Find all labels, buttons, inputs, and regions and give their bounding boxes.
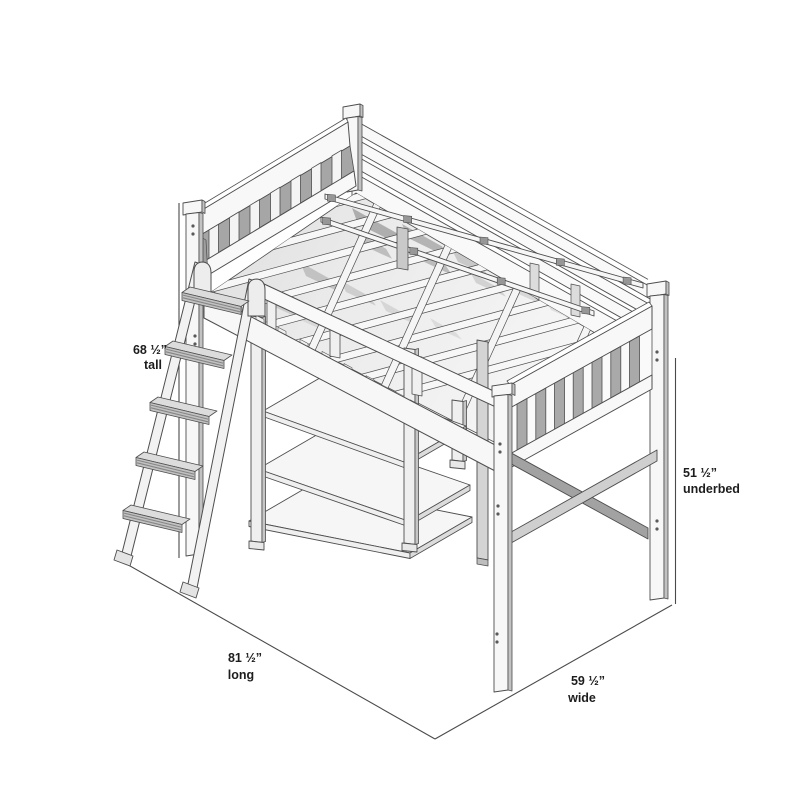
- svg-text:wide: wide: [567, 691, 596, 705]
- svg-text:underbed: underbed: [683, 482, 740, 496]
- svg-text:81 ½”: 81 ½”: [228, 651, 262, 665]
- svg-text:59 ½”: 59 ½”: [571, 674, 605, 688]
- svg-text:68 ½”: 68 ½”: [133, 343, 167, 357]
- svg-text:long: long: [228, 668, 254, 682]
- svg-text:tall: tall: [144, 358, 162, 372]
- svg-text:51 ½”: 51 ½”: [683, 466, 717, 480]
